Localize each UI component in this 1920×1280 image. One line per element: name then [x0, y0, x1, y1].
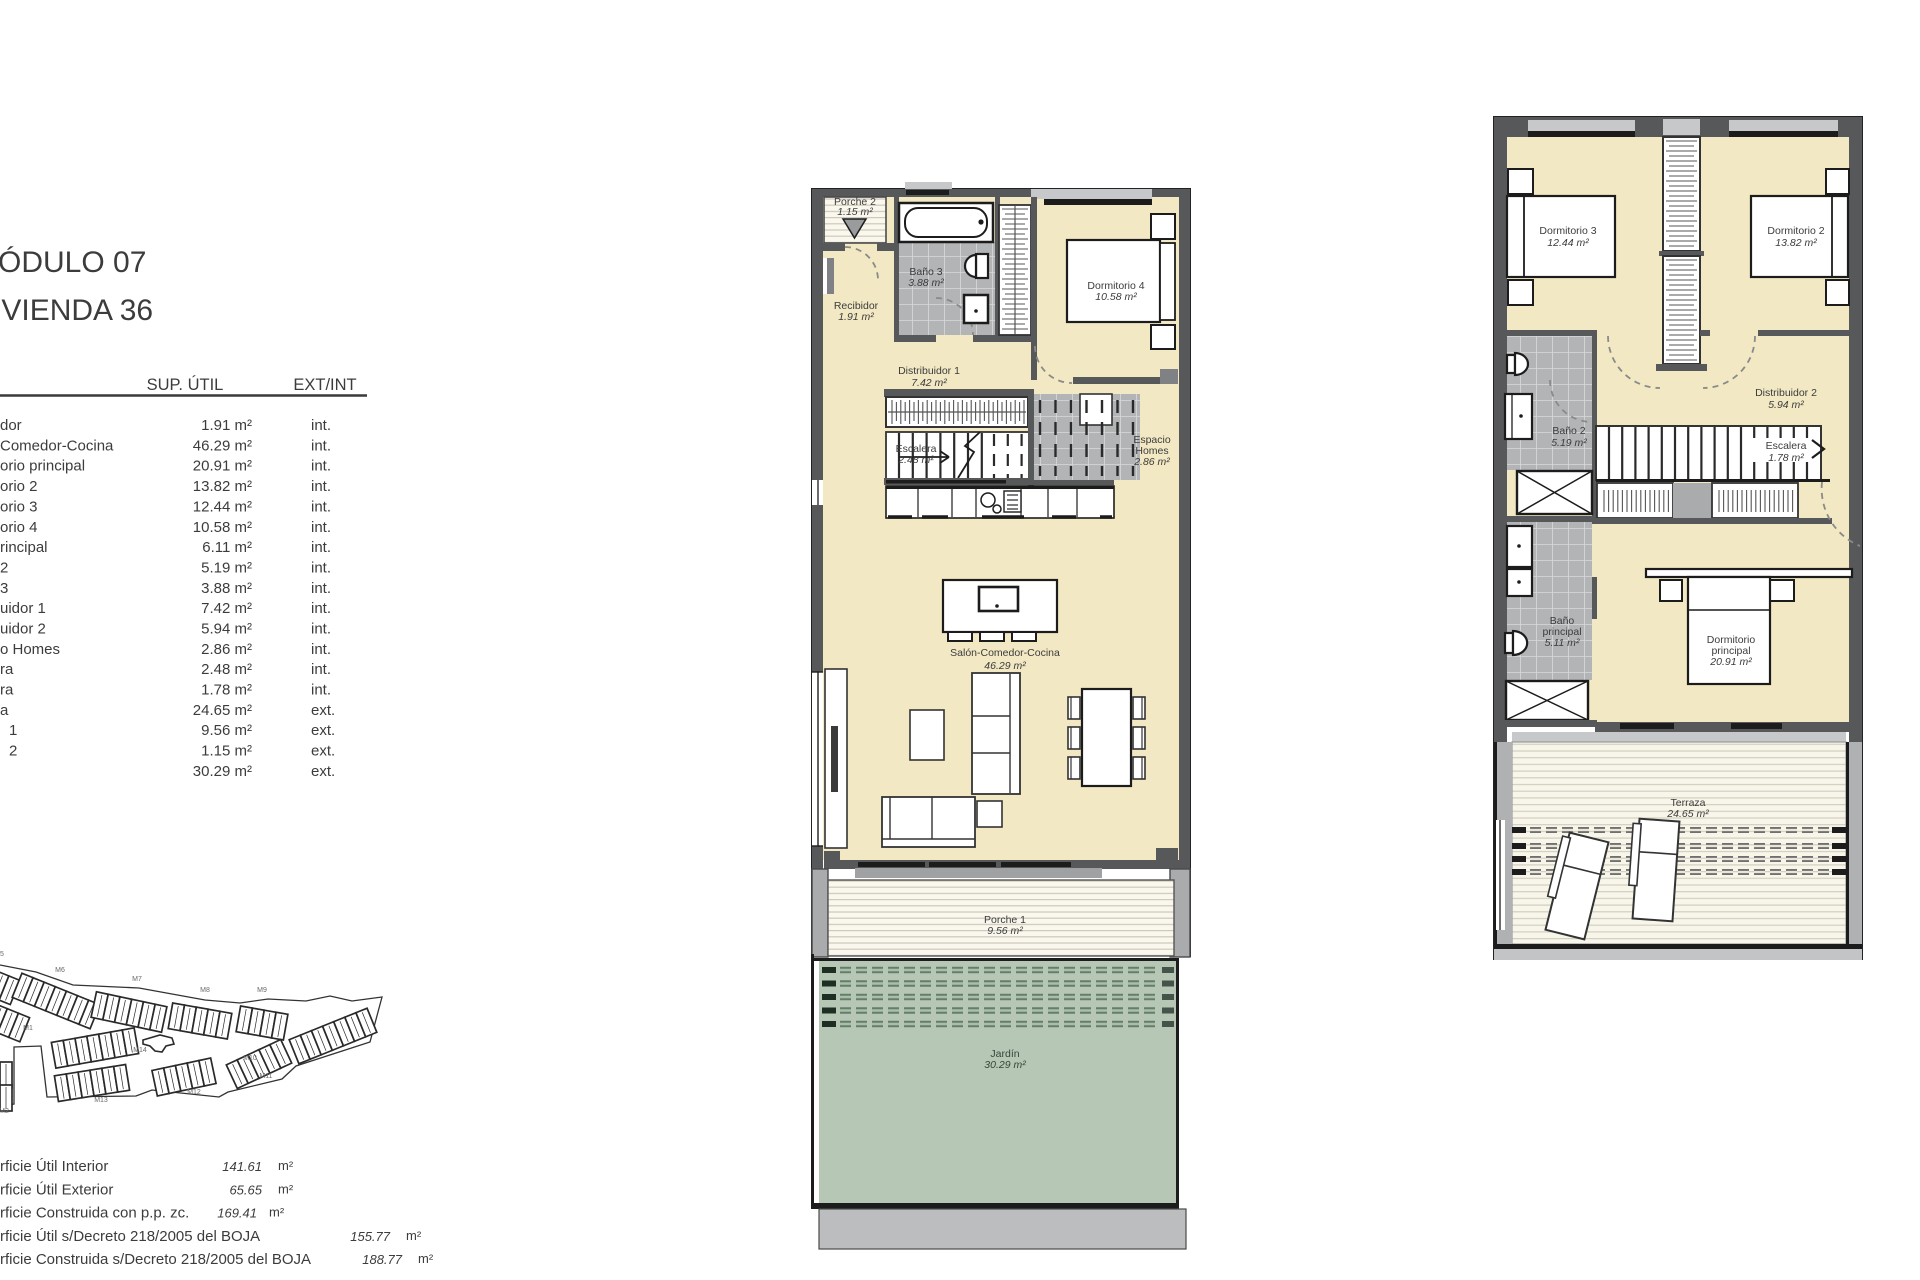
svg-text:int.: int.: [311, 519, 331, 536]
svg-text:9.56 m²: 9.56 m²: [987, 925, 1023, 937]
svg-text:46.29 m²: 46.29 m²: [984, 660, 1026, 672]
svg-text:int.: int.: [311, 417, 331, 434]
svg-text:ra: ra: [0, 661, 14, 678]
svg-text:1.15 m²: 1.15 m²: [837, 206, 873, 218]
svg-text:24.65 m²: 24.65 m²: [193, 702, 252, 719]
svg-text:12.44 m²: 12.44 m²: [1547, 237, 1589, 249]
svg-text:m²: m²: [269, 1205, 285, 1220]
svg-text:Baño 2: Baño 2: [1552, 425, 1585, 437]
svg-text:M11: M11: [259, 1073, 272, 1080]
svg-text:M2: M2: [0, 1108, 9, 1115]
svg-text:int.: int.: [311, 498, 331, 515]
svg-text:5.94 m²: 5.94 m²: [201, 621, 252, 638]
svg-text:uidor 1: uidor 1: [0, 600, 46, 617]
svg-text:m²: m²: [278, 1181, 294, 1196]
svg-text:Comedor-Cocina: Comedor-Cocina: [0, 437, 114, 454]
svg-text:2.48 m²: 2.48 m²: [201, 661, 252, 678]
svg-text:9.56 m²: 9.56 m²: [201, 722, 252, 739]
svg-text:uidor 2: uidor 2: [0, 621, 46, 638]
svg-text:M14: M14: [133, 1047, 147, 1054]
svg-text:int.: int.: [311, 621, 331, 638]
svg-text:int.: int.: [311, 458, 331, 475]
svg-text:5.94 m²: 5.94 m²: [1768, 399, 1804, 411]
svg-text:orio 2: orio 2: [0, 478, 38, 495]
svg-text:m²: m²: [418, 1251, 434, 1266]
svg-text:3: 3: [0, 580, 8, 597]
svg-text:m²: m²: [278, 1158, 294, 1173]
svg-text:ra: ra: [0, 682, 14, 699]
svg-text:rincipal: rincipal: [0, 539, 48, 556]
svg-text:ext.: ext.: [311, 702, 335, 719]
svg-text:int.: int.: [311, 661, 331, 678]
svg-text:rficie Útil Interior: rficie Útil Interior: [0, 1158, 108, 1175]
svg-text:a: a: [0, 702, 9, 719]
svg-text:int.: int.: [311, 478, 331, 495]
svg-text:1.78 m²: 1.78 m²: [201, 682, 252, 699]
svg-text:155.77: 155.77: [350, 1229, 391, 1244]
svg-text:12.44 m²: 12.44 m²: [193, 498, 252, 515]
svg-text:M1: M1: [23, 1025, 33, 1032]
svg-text:rficie Construida con p.p. zc.: rficie Construida con p.p. zc.: [0, 1205, 189, 1222]
svg-text:1.91 m²: 1.91 m²: [838, 311, 874, 323]
svg-text:1.78 m²: 1.78 m²: [1768, 452, 1804, 464]
svg-text:Dormitorio 3: Dormitorio 3: [1539, 225, 1596, 237]
svg-text:13.82 m²: 13.82 m²: [1775, 237, 1817, 249]
svg-text:30.29 m²: 30.29 m²: [193, 763, 252, 780]
svg-text:65.65: 65.65: [229, 1182, 262, 1197]
svg-text:2: 2: [9, 743, 17, 760]
svg-text:Distribuidor 2: Distribuidor 2: [1755, 387, 1817, 399]
svg-text:3.88 m²: 3.88 m²: [201, 580, 252, 597]
svg-text:30.29 m²: 30.29 m²: [984, 1059, 1026, 1071]
svg-text:int.: int.: [311, 560, 331, 577]
svg-text:169.41: 169.41: [217, 1206, 257, 1221]
svg-text:MÓDULO 07: MÓDULO 07: [0, 246, 146, 279]
svg-text:10.58 m²: 10.58 m²: [193, 519, 252, 536]
svg-text:ext.: ext.: [311, 722, 335, 739]
svg-text:188.77: 188.77: [362, 1252, 403, 1267]
svg-text:int.: int.: [311, 641, 331, 658]
svg-text:int.: int.: [311, 539, 331, 556]
svg-text:int.: int.: [311, 437, 331, 454]
svg-text:Dormitorio 2: Dormitorio 2: [1767, 225, 1824, 237]
svg-text:ext.: ext.: [311, 743, 335, 760]
svg-text:13.82 m²: 13.82 m²: [193, 478, 252, 495]
svg-text:M9: M9: [257, 987, 267, 994]
svg-text:2.86 m²: 2.86 m²: [201, 641, 252, 658]
svg-text:rficie Útil Exterior: rficie Útil Exterior: [0, 1181, 113, 1198]
svg-text:5.19 m²: 5.19 m²: [1551, 437, 1587, 449]
svg-text:M7: M7: [132, 976, 142, 983]
svg-text:46.29 m²: 46.29 m²: [193, 437, 252, 454]
svg-text:SUP. ÚTIL: SUP. ÚTIL: [147, 375, 224, 394]
svg-text:6.11 m²: 6.11 m²: [202, 539, 252, 556]
svg-text:Escalera: Escalera: [1766, 440, 1807, 452]
svg-text:141.61: 141.61: [222, 1159, 262, 1174]
svg-text:10.58 m²: 10.58 m²: [1095, 291, 1137, 303]
svg-text:24.65 m²: 24.65 m²: [1666, 808, 1709, 820]
svg-text:2: 2: [0, 560, 8, 577]
svg-text:1: 1: [9, 722, 17, 739]
svg-text:2.86 m²: 2.86 m²: [1133, 456, 1170, 468]
svg-text:M10: M10: [243, 1055, 257, 1062]
svg-text:int.: int.: [311, 580, 331, 597]
svg-text:1.15 m²: 1.15 m²: [201, 743, 252, 760]
svg-text:3.88 m²: 3.88 m²: [908, 277, 944, 289]
svg-text:orio 3: orio 3: [0, 498, 38, 515]
svg-text:rficie Construida s/Decreto 21: rficie Construida s/Decreto 218/2005 del…: [0, 1251, 311, 1268]
svg-text:Salón-Comedor-Cocina: Salón-Comedor-Cocina: [950, 647, 1060, 659]
svg-text:5.19 m²: 5.19 m²: [201, 560, 252, 577]
svg-text:Distribuidor 1: Distribuidor 1: [898, 365, 960, 377]
svg-text:M6: M6: [55, 967, 65, 974]
svg-text:1.91 m²: 1.91 m²: [201, 417, 252, 434]
svg-text:dor: dor: [0, 417, 22, 434]
svg-text:5.11 m²: 5.11 m²: [1545, 637, 1580, 649]
svg-text:EXT/INT: EXT/INT: [293, 376, 356, 394]
svg-text:orio principal: orio principal: [0, 458, 85, 475]
svg-text:20.91 m²: 20.91 m²: [193, 458, 252, 475]
svg-text:o Homes: o Homes: [0, 641, 60, 658]
svg-text:M8: M8: [200, 987, 210, 994]
svg-text:M13: M13: [94, 1097, 108, 1104]
svg-text:orio 4: orio 4: [0, 519, 38, 536]
svg-text:ext.: ext.: [311, 763, 335, 780]
svg-text:5: 5: [0, 951, 4, 958]
svg-text:2.48 m²: 2.48 m²: [897, 454, 934, 466]
svg-text:M12: M12: [187, 1089, 201, 1096]
svg-text:20.91 m²: 20.91 m²: [1709, 656, 1752, 668]
svg-text:int.: int.: [311, 682, 331, 699]
svg-text:7.42 m²: 7.42 m²: [201, 600, 252, 617]
svg-text:7.42 m²: 7.42 m²: [911, 377, 947, 389]
svg-text:rficie Útil s/Decreto 218/2005: rficie Útil s/Decreto 218/2005 del BOJA: [0, 1228, 260, 1245]
svg-text:int.: int.: [311, 600, 331, 617]
svg-text:VIVIENDA 36: VIVIENDA 36: [0, 294, 153, 327]
svg-text:m²: m²: [406, 1228, 422, 1243]
